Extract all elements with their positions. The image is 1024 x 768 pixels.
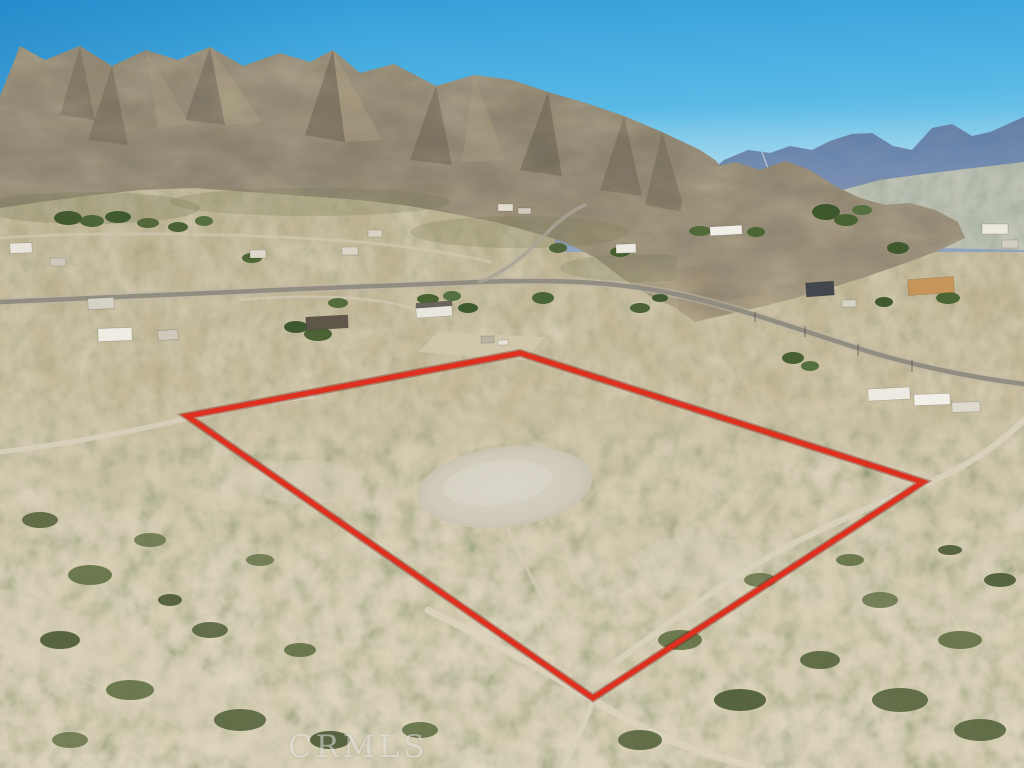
aerial-photo-canvas bbox=[0, 0, 1024, 768]
crmls-watermark: CRMLS bbox=[288, 729, 488, 765]
aerial-photo: CRMLS bbox=[0, 0, 1024, 768]
